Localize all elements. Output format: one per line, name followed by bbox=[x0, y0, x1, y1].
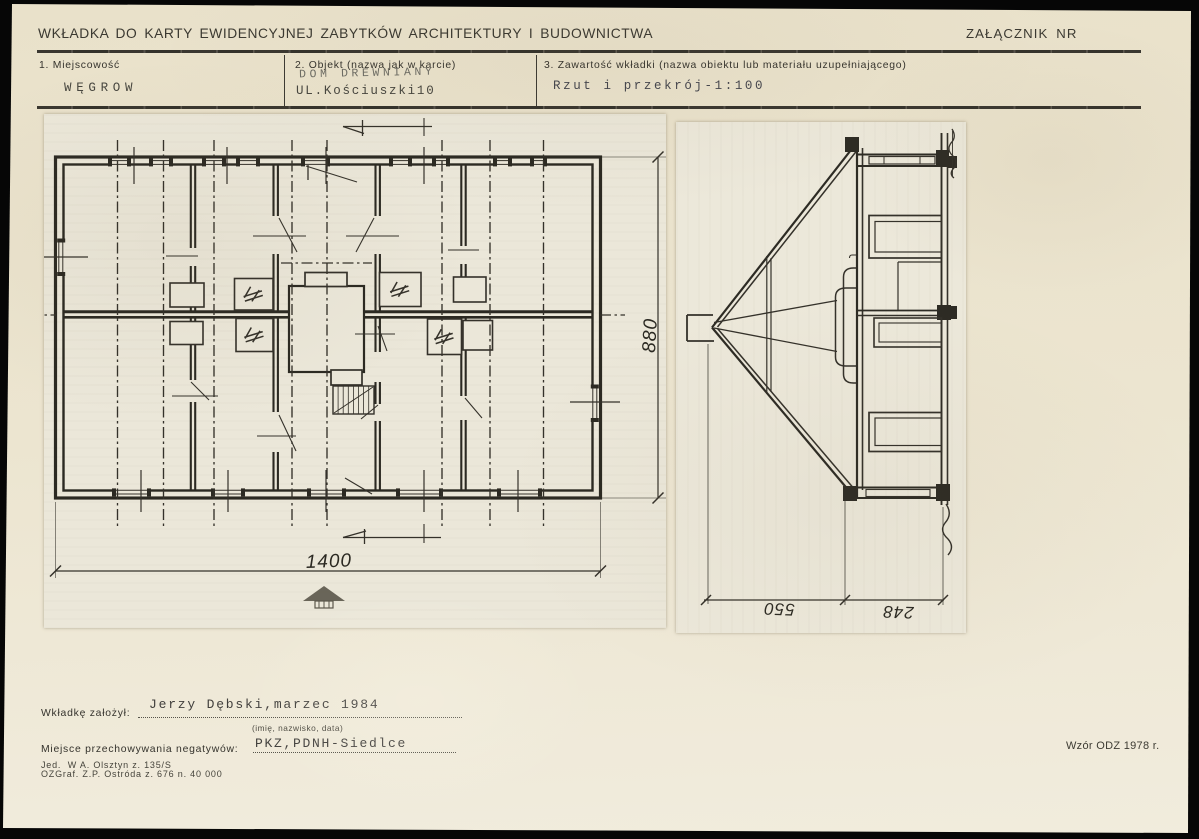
svg-text:1400: 1400 bbox=[305, 550, 352, 573]
svg-text:550: 550 bbox=[763, 599, 795, 619]
svg-text:880: 880 bbox=[639, 318, 662, 354]
svg-text:248: 248 bbox=[882, 602, 915, 622]
